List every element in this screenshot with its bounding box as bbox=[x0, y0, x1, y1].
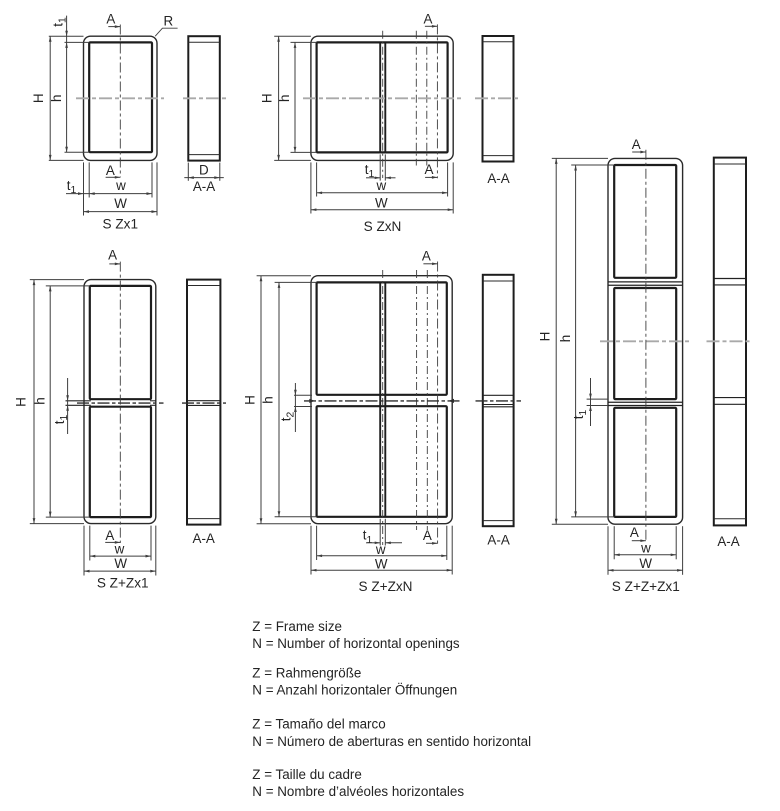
svg-text:t1: t1 bbox=[571, 410, 589, 420]
svg-text:w: w bbox=[115, 178, 126, 193]
svg-text:A: A bbox=[423, 528, 432, 543]
svg-text:Z = Frame size: Z = Frame size bbox=[252, 619, 342, 634]
svg-text:A-A: A-A bbox=[487, 533, 509, 548]
svg-text:A: A bbox=[108, 248, 117, 263]
svg-text:N = Número de aberturas en sen: N = Número de aberturas en sentido horiz… bbox=[252, 734, 531, 749]
svg-text:w: w bbox=[375, 542, 386, 557]
svg-text:A: A bbox=[422, 249, 431, 264]
svg-text:A: A bbox=[106, 163, 115, 178]
svg-text:N = Number of horizontal openi: N = Number of horizontal openings bbox=[252, 636, 460, 651]
svg-text:H: H bbox=[537, 332, 552, 342]
svg-text:h: h bbox=[277, 95, 292, 102]
svg-text:w: w bbox=[640, 540, 651, 555]
svg-text:t1: t1 bbox=[365, 162, 375, 180]
svg-text:W: W bbox=[375, 556, 388, 571]
svg-text:Z = Tamaño del marco: Z = Tamaño del marco bbox=[252, 717, 385, 732]
svg-text:N = Nombre d’alvéoles horizont: N = Nombre d’alvéoles horizontales bbox=[252, 784, 464, 799]
svg-text:D: D bbox=[199, 163, 209, 178]
svg-text:A: A bbox=[632, 137, 641, 152]
svg-text:R: R bbox=[163, 14, 173, 29]
svg-text:H: H bbox=[31, 93, 46, 103]
svg-text:N = Anzahl horizontaler Öffnun: N = Anzahl horizontaler Öffnungen bbox=[252, 683, 457, 698]
svg-text:Z = Rahmengröße: Z = Rahmengröße bbox=[252, 666, 361, 681]
svg-text:S Z+Zx1: S Z+Zx1 bbox=[97, 576, 149, 591]
svg-text:h: h bbox=[49, 95, 64, 102]
svg-text:h: h bbox=[32, 397, 47, 404]
svg-text:H: H bbox=[13, 397, 28, 407]
svg-text:t1: t1 bbox=[363, 528, 373, 546]
svg-text:w: w bbox=[114, 542, 125, 557]
svg-text:S Z+ZxN: S Z+ZxN bbox=[358, 579, 412, 594]
svg-text:W: W bbox=[375, 195, 388, 210]
svg-text:A: A bbox=[106, 12, 115, 27]
svg-text:A: A bbox=[630, 525, 639, 540]
svg-text:w: w bbox=[375, 178, 386, 193]
svg-text:t1: t1 bbox=[51, 17, 69, 27]
svg-text:A-A: A-A bbox=[193, 179, 215, 194]
svg-text:A: A bbox=[425, 162, 434, 177]
svg-text:t2: t2 bbox=[279, 412, 297, 422]
svg-text:h: h bbox=[261, 396, 276, 403]
svg-text:S Z+Z+Zx1: S Z+Z+Zx1 bbox=[612, 579, 680, 594]
svg-text:W: W bbox=[639, 556, 652, 571]
svg-text:W: W bbox=[114, 196, 127, 211]
svg-text:h: h bbox=[558, 335, 573, 342]
svg-text:A: A bbox=[105, 528, 114, 543]
svg-text:S Zx1: S Zx1 bbox=[103, 217, 139, 232]
svg-text:A-A: A-A bbox=[193, 531, 215, 546]
svg-text:Z = Taille du cadre: Z = Taille du cadre bbox=[252, 767, 362, 782]
svg-text:S ZxN: S ZxN bbox=[364, 219, 402, 234]
svg-text:H: H bbox=[242, 395, 257, 405]
svg-text:H: H bbox=[260, 93, 275, 103]
svg-text:W: W bbox=[114, 556, 127, 571]
svg-text:A-A: A-A bbox=[717, 534, 739, 549]
svg-text:A: A bbox=[424, 12, 433, 27]
svg-text:A-A: A-A bbox=[487, 171, 509, 186]
